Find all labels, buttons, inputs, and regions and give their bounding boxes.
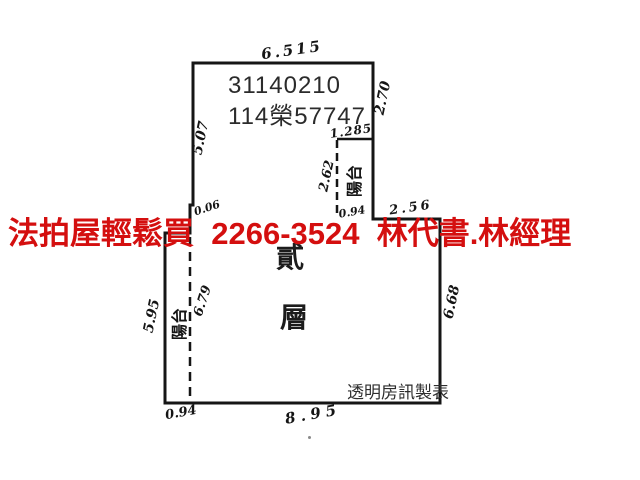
scan-noise-dot bbox=[308, 436, 311, 439]
watermark-ad-text: 法拍屋輕鬆買 2266-3524 林代書.林經理 bbox=[8, 217, 640, 251]
left-balcony-label: 陽台 bbox=[166, 308, 190, 340]
floorplan-page: 31140210 114榮57747 貳 層 透明房訊製表 6.515 5.07… bbox=[0, 0, 640, 480]
right-balcony-label: 陽台 bbox=[341, 165, 365, 197]
maker-credit: 透明房訊製表 bbox=[347, 378, 449, 403]
floor-label-char-2: 層 bbox=[280, 296, 308, 336]
